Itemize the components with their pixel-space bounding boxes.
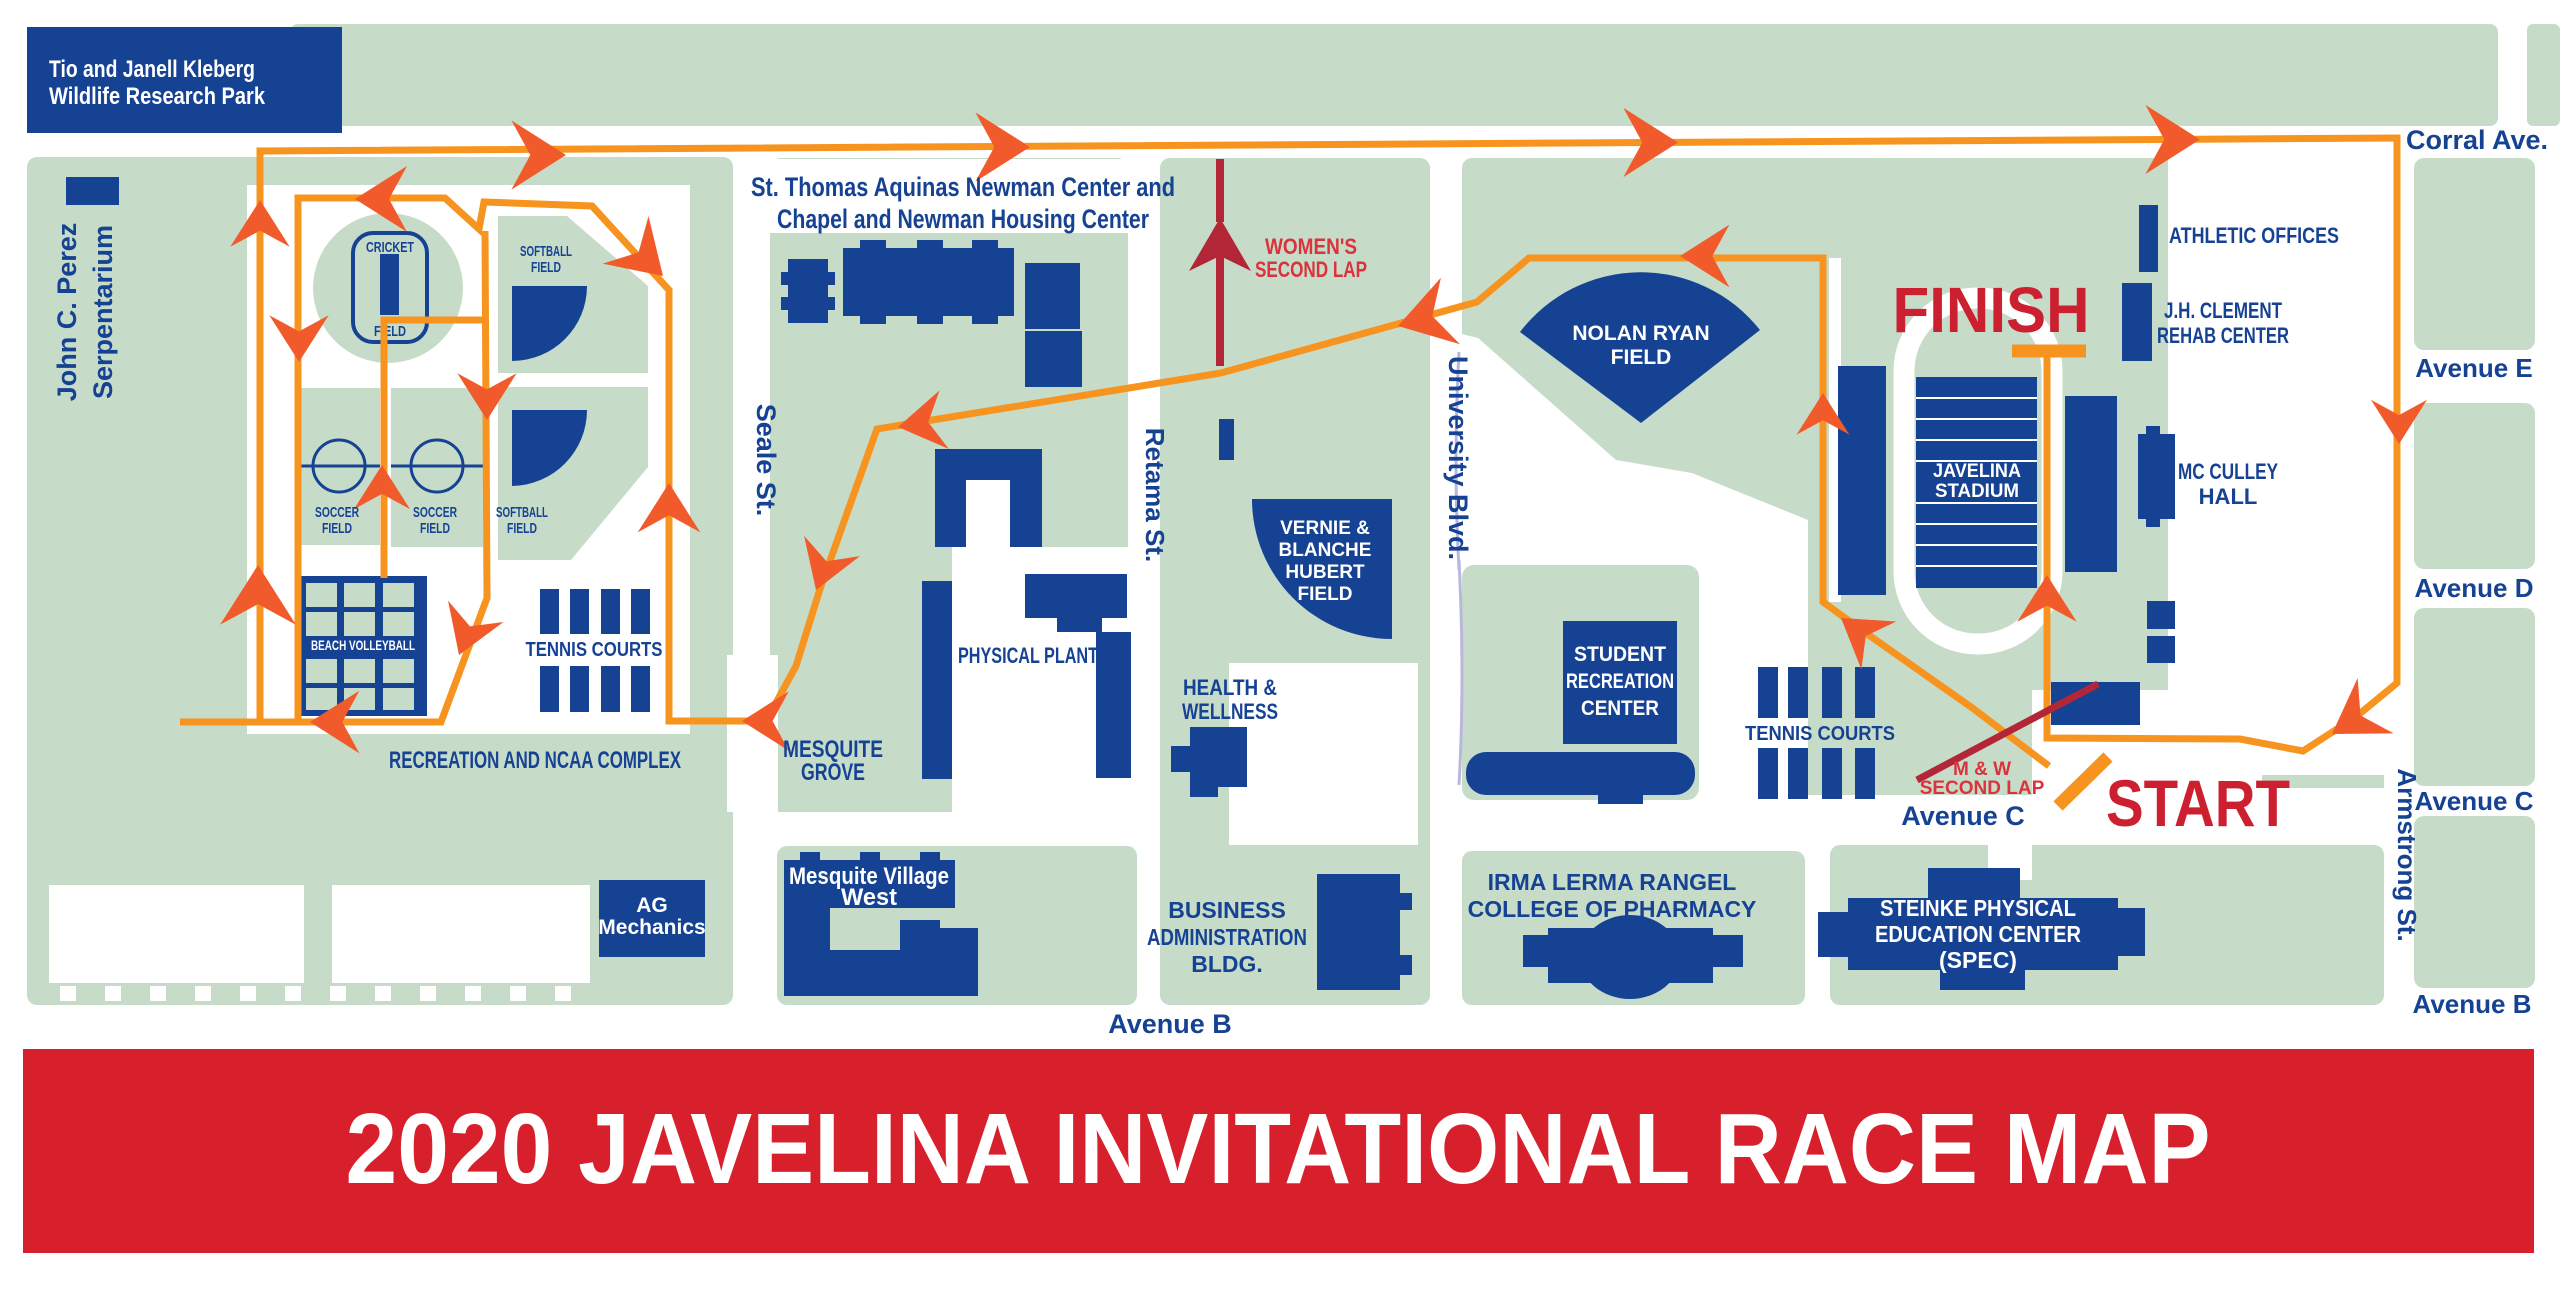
svg-text:IRMA LERMA RANGEL: IRMA LERMA RANGEL [1488,869,1737,895]
svg-text:STUDENT: STUDENT [1574,643,1666,666]
svg-text:Avenue D: Avenue D [2415,573,2534,603]
svg-text:EDUCATION CENTER: EDUCATION CENTER [1875,921,2081,947]
svg-text:RECREATION AND NCAA COMPLEX: RECREATION AND NCAA COMPLEX [389,747,681,774]
svg-text:FIELD: FIELD [1298,584,1353,605]
svg-text:Serpentarium: Serpentarium [88,225,118,399]
svg-text:Avenue B: Avenue B [2413,989,2532,1019]
svg-text:STADIUM: STADIUM [1935,481,2019,502]
svg-text:Armstrong St.: Armstrong St. [2392,768,2422,941]
svg-text:SECOND LAP: SECOND LAP [1920,778,2045,799]
svg-text:TENNIS COURTS: TENNIS COURTS [526,639,663,661]
svg-text:Retama St.: Retama St. [1140,428,1170,562]
svg-text:START: START [2106,766,2290,840]
svg-text:VERNIE &: VERNIE & [1280,518,1370,539]
svg-text:TENNIS COURTS: TENNIS COURTS [1745,723,1895,745]
svg-text:HEALTH &: HEALTH & [1183,675,1277,700]
svg-text:RECREATION: RECREATION [1566,670,1674,693]
svg-text:J.H. CLEMENT: J.H. CLEMENT [2164,298,2282,323]
svg-text:MC CULLEY: MC CULLEY [2178,459,2278,484]
svg-text:FIELD: FIELD [1611,346,1672,369]
svg-text:BLDG.: BLDG. [1191,951,1263,977]
svg-text:WOMEN'S: WOMEN'S [1265,234,1357,259]
svg-text:HALL: HALL [2199,484,2258,509]
svg-text:West: West [841,884,897,911]
svg-text:Avenue B: Avenue B [1108,1009,1232,1039]
svg-text:Corral Ave.: Corral Ave. [2406,125,2548,155]
svg-text:M & W: M & W [1953,759,2011,780]
svg-text:Chapel and Newman Housing Cent: Chapel and Newman Housing Center [777,204,1149,234]
svg-text:AG: AG [636,894,668,917]
svg-text:REHAB CENTER: REHAB CENTER [2157,323,2289,348]
svg-text:FIELD: FIELD [374,323,406,340]
svg-text:BLANCHE: BLANCHE [1279,540,1372,561]
svg-text:JAVELINA: JAVELINA [1933,461,2021,482]
svg-text:Mechanics: Mechanics [598,916,705,939]
svg-text:Tio and Janell Kleberg: Tio and Janell Kleberg [49,56,255,83]
svg-text:BUSINESS: BUSINESS [1168,897,1286,923]
svg-text:NOLAN RYAN: NOLAN RYAN [1572,322,1709,345]
svg-text:Avenue C: Avenue C [1901,801,2025,831]
svg-text:PHYSICAL PLANT: PHYSICAL PLANT [958,643,1098,668]
svg-text:Avenue C: Avenue C [2415,786,2534,816]
svg-text:ATHLETIC OFFICES: ATHLETIC OFFICES [2169,223,2339,248]
svg-text:SOFTBALL: SOFTBALL [520,243,572,260]
svg-text:CENTER: CENTER [1581,697,1659,720]
svg-text:WELLNESS: WELLNESS [1182,699,1278,724]
svg-text:John C. Perez: John C. Perez [52,223,82,402]
svg-text:SECOND LAP: SECOND LAP [1255,257,1367,282]
svg-text:FINISH: FINISH [1893,274,2090,346]
svg-text:SOCCER: SOCCER [315,504,359,521]
svg-text:STEINKE PHYSICAL: STEINKE PHYSICAL [1880,895,2076,921]
svg-text:Seale St.: Seale St. [751,404,781,517]
svg-text:(SPEC): (SPEC) [1939,947,2017,973]
svg-text:FIELD: FIELD [322,520,352,537]
svg-text:GROVE: GROVE [801,759,865,786]
svg-text:St. Thomas Aquinas Newman Cent: St. Thomas Aquinas Newman Center and [751,172,1175,202]
svg-text:SOFTBALL: SOFTBALL [496,504,548,521]
svg-text:2020 JAVELINA INVITATIONAL RAC: 2020 JAVELINA INVITATIONAL RACE MAP [346,1093,2211,1205]
svg-text:SOCCER: SOCCER [413,504,457,521]
svg-text:COLLEGE OF PHARMACY: COLLEGE OF PHARMACY [1468,896,1757,922]
svg-text:FIELD: FIELD [507,520,537,537]
svg-text:HUBERT: HUBERT [1285,562,1365,583]
svg-text:BEACH VOLLEYBALL: BEACH VOLLEYBALL [311,637,415,653]
svg-text:University Blvd.: University Blvd. [1443,356,1473,560]
svg-text:ADMINISTRATION: ADMINISTRATION [1147,924,1307,950]
svg-text:Avenue E: Avenue E [2415,353,2533,383]
svg-text:FIELD: FIELD [531,259,561,276]
svg-text:CRICKET: CRICKET [366,239,414,256]
svg-text:FIELD: FIELD [420,520,450,537]
svg-text:Wildlife Research Park: Wildlife Research Park [49,83,266,110]
